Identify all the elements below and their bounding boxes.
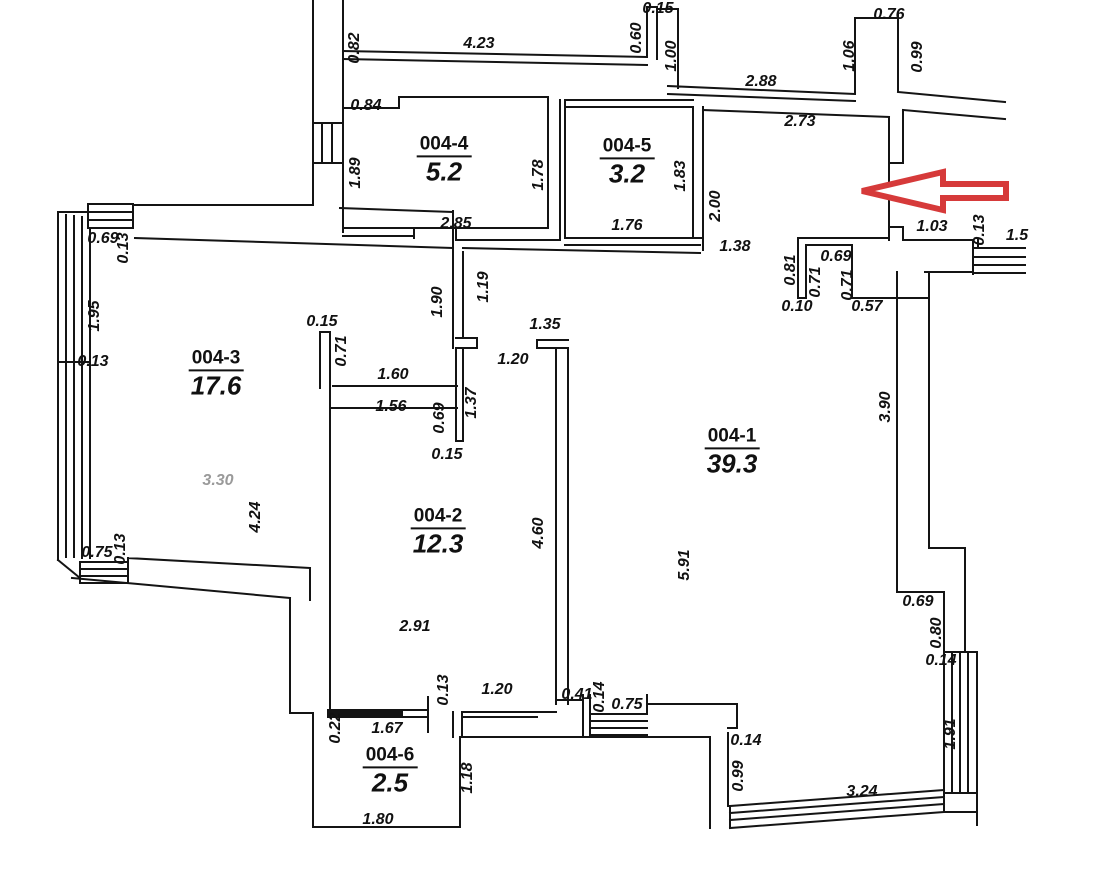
shaft-niche-walls bbox=[798, 238, 929, 298]
window-corridor bbox=[590, 714, 647, 735]
interior-walls-top bbox=[463, 110, 889, 253]
window-right bbox=[944, 652, 977, 825]
room-004-4-walls bbox=[343, 97, 560, 240]
room-004-5-walls bbox=[565, 100, 703, 250]
red-arrow-icon bbox=[862, 172, 1006, 210]
stairs-symbol bbox=[313, 0, 343, 232]
room-004-2-walls bbox=[320, 211, 568, 710]
left-exterior-wall bbox=[58, 204, 453, 600]
window-bottom bbox=[730, 790, 944, 828]
floor-plan: 0.824.230.150.601.002.880.761.060.992.73… bbox=[0, 0, 1110, 891]
wall-poche bbox=[327, 709, 403, 718]
exterior-walls-top bbox=[343, 7, 1005, 119]
right-exterior-wall bbox=[897, 272, 973, 652]
walls-drawing bbox=[0, 0, 1110, 891]
entrance-door-wall bbox=[798, 110, 973, 240]
window-top-right bbox=[973, 240, 1025, 274]
